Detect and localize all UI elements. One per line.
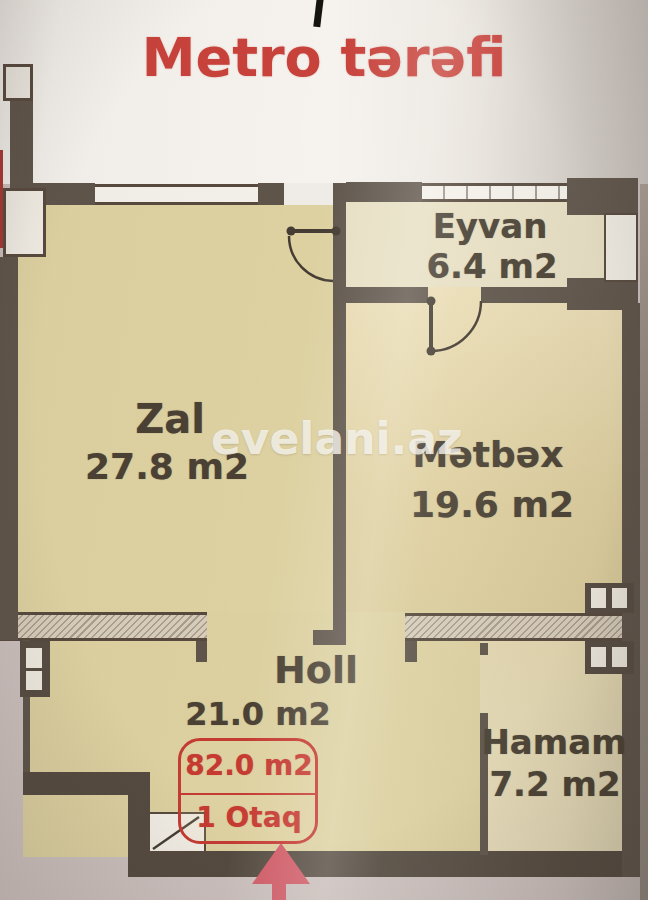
pier-metbex-hamam-bottom xyxy=(585,641,634,674)
hamam-area: 7.2 m2 xyxy=(489,764,620,804)
wall-metbex-holl-hatched xyxy=(405,613,622,641)
pier-metbex-hamam-top xyxy=(585,583,634,613)
summary-divider xyxy=(178,793,318,795)
pier-window-cell xyxy=(591,647,606,667)
pier-window-cell xyxy=(612,647,627,667)
hamam-label: Hamam xyxy=(481,722,626,762)
wall-hatch-left-post xyxy=(196,641,207,662)
outside-right-strip xyxy=(640,184,648,900)
watermark: evelani.az xyxy=(211,413,463,464)
pier-eyvan-top-right xyxy=(567,178,638,215)
window-zal xyxy=(95,184,258,205)
column-left-top xyxy=(3,64,33,101)
pier-window-cell xyxy=(612,588,627,608)
wall-vertical-endcap xyxy=(313,630,346,645)
eyvan-label: Eyvan xyxy=(433,206,548,246)
wall-zal-holl-hatched xyxy=(0,612,207,641)
summary-room-count: 1 Otaq xyxy=(196,801,301,834)
wall-zal-top-right xyxy=(258,183,284,205)
summary-total-area: 82.0 m2 xyxy=(185,749,313,782)
pier-holl-left xyxy=(20,641,50,697)
zal-door-opening-patch xyxy=(284,183,333,205)
wall-eyvan-top xyxy=(346,182,422,202)
pier-window-cell xyxy=(26,671,42,690)
direction-title: Metro tərəfi xyxy=(142,26,506,89)
wall-left-exterior xyxy=(0,257,18,640)
holl-area: 21.0 m2 xyxy=(185,695,331,733)
entrance-arrow-stem xyxy=(272,884,286,900)
pier-window-cell xyxy=(591,588,606,608)
wall-hamam-left-tick xyxy=(480,643,488,655)
wall-eyvan-bottom-right xyxy=(481,287,567,303)
metbex-area: 19.6 m2 xyxy=(410,484,574,525)
wall-left-upper xyxy=(10,100,33,188)
floorplan-photo: Metro tərəfi xyxy=(0,0,648,900)
wall-hatch-right-post xyxy=(405,641,417,662)
window-eyvan-rail xyxy=(604,213,638,282)
eyvan-area: 6.4 m2 xyxy=(426,246,557,286)
holl-label: Holl xyxy=(274,648,358,692)
wall-eyvan-bottom-left xyxy=(346,287,428,303)
pier-window-cell xyxy=(26,648,42,668)
wall-bottom-exterior xyxy=(128,851,640,877)
window-eyvan xyxy=(422,183,567,202)
column-left-mid xyxy=(3,188,46,257)
zal-label: Zal xyxy=(135,396,205,442)
